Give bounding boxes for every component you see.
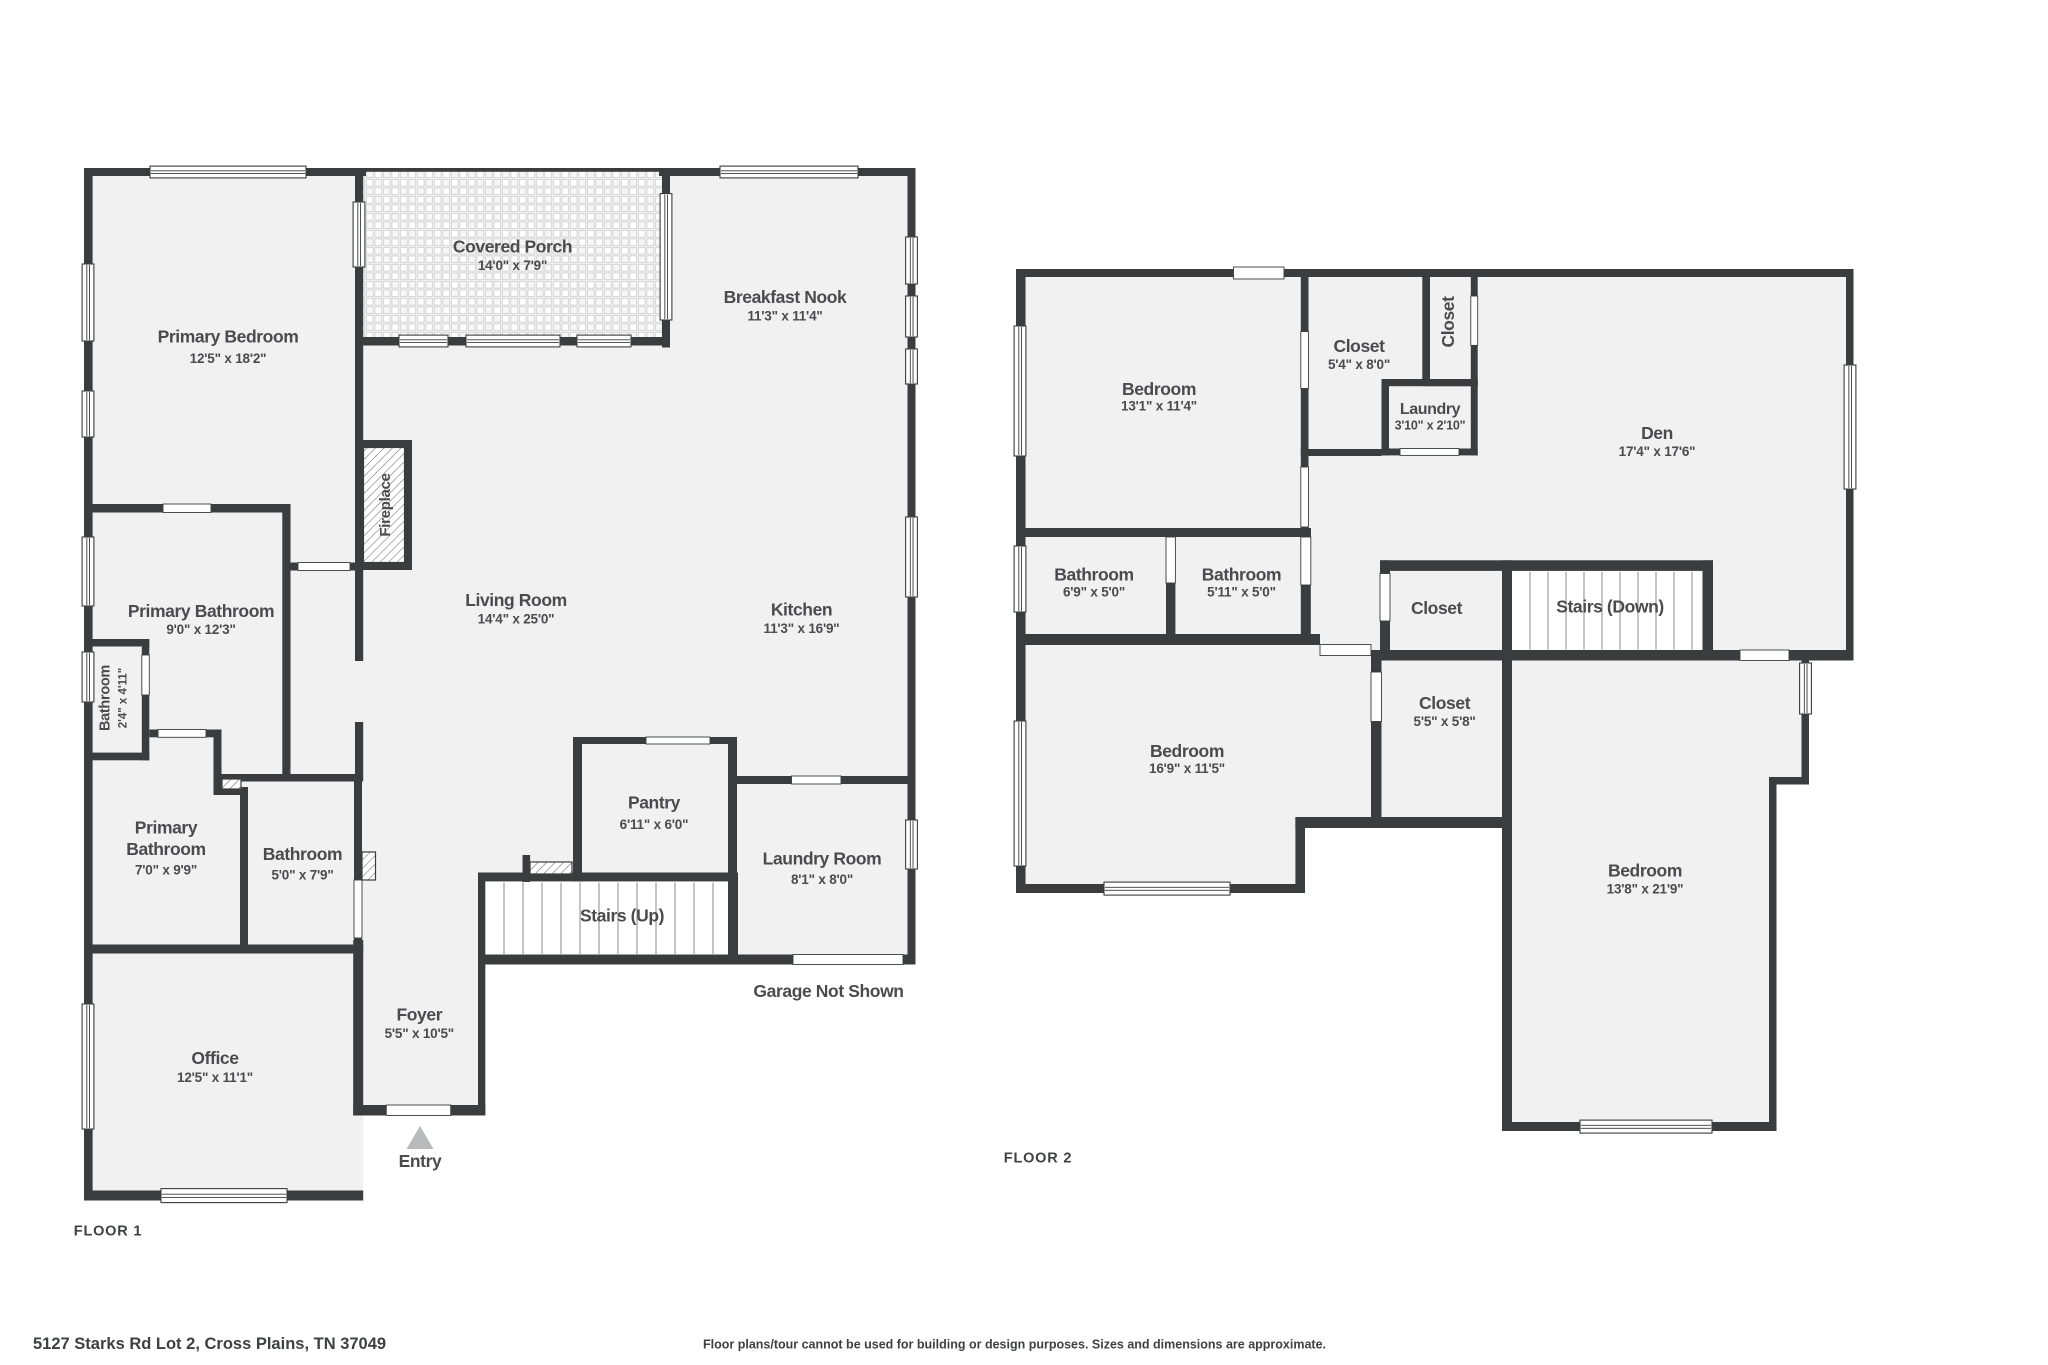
svg-text:14'0" x 7'9": 14'0" x 7'9" [478,258,547,273]
svg-text:Closet: Closet [1419,693,1471,713]
svg-text:Bathroom: Bathroom [1054,565,1133,585]
svg-text:5'5" x 5'8": 5'5" x 5'8" [1414,714,1476,729]
svg-text:Kitchen: Kitchen [771,600,832,620]
svg-text:Bathroom: Bathroom [1202,565,1281,585]
svg-text:Garage Not Shown: Garage Not Shown [753,981,903,1001]
svg-text:14'4" x 25'0": 14'4" x 25'0" [478,612,555,627]
svg-text:Stairs (Up): Stairs (Up) [580,906,664,926]
svg-text:Bedroom: Bedroom [1150,741,1224,761]
svg-text:Den: Den [1641,423,1673,443]
svg-text:9'0" x 12'3": 9'0" x 12'3" [166,622,235,637]
svg-text:Pantry: Pantry [628,793,681,813]
svg-text:5127 Starks Rd Lot 2, Cross Pl: 5127 Starks Rd Lot 2, Cross Plains, TN 3… [33,1335,386,1353]
svg-text:Stairs (Down): Stairs (Down) [1556,597,1664,617]
svg-text:Laundry Room: Laundry Room [763,849,882,869]
svg-text:6'9" x 5'0": 6'9" x 5'0" [1063,585,1125,600]
svg-text:3'10" x 2'10": 3'10" x 2'10" [1395,418,1466,432]
svg-text:Primary Bedroom: Primary Bedroom [158,327,299,347]
svg-text:13'8" x 21'9": 13'8" x 21'9" [1607,882,1684,897]
svg-text:12'5" x 18'2": 12'5" x 18'2" [190,351,267,366]
svg-text:Floor plans/tour cannot be use: Floor plans/tour cannot be used for buil… [703,1337,1326,1351]
svg-text:12'5" x 11'1": 12'5" x 11'1" [177,1070,253,1085]
svg-text:Bathroom: Bathroom [98,665,114,731]
svg-text:7'0" x 9'9": 7'0" x 9'9" [135,863,197,878]
svg-text:Laundry: Laundry [1400,401,1461,418]
svg-text:2'4" x 4'11": 2'4" x 4'11" [118,668,130,729]
svg-text:5'4" x 8'0": 5'4" x 8'0" [1328,357,1390,372]
svg-text:Breakfast Nook: Breakfast Nook [724,287,847,307]
svg-text:13'1" x 11'4": 13'1" x 11'4" [1121,399,1197,414]
svg-text:Closet: Closet [1411,598,1463,618]
svg-text:16'9" x 11'5": 16'9" x 11'5" [1149,761,1225,776]
svg-text:Primary Bathroom: Primary Bathroom [128,601,274,621]
svg-text:5'0" x 7'9": 5'0" x 7'9" [271,868,333,883]
svg-text:Bedroom: Bedroom [1608,861,1682,881]
svg-text:FLOOR 2: FLOOR 2 [1004,1151,1072,1167]
svg-text:Primary: Primary [135,818,198,838]
svg-text:6'11" x 6'0": 6'11" x 6'0" [620,817,689,832]
svg-text:Closet: Closet [1333,336,1385,356]
svg-text:Bedroom: Bedroom [1122,379,1196,399]
svg-text:17'4" x 17'6": 17'4" x 17'6" [1619,444,1696,459]
svg-text:11'3" x 16'9": 11'3" x 16'9" [764,621,840,636]
svg-text:Entry: Entry [399,1151,442,1171]
svg-text:Fireplace: Fireplace [377,473,394,536]
svg-text:Living Room: Living Room [465,590,567,610]
svg-text:Closet: Closet [1438,296,1458,348]
svg-text:Office: Office [191,1048,239,1068]
svg-text:11'3" x 11'4": 11'3" x 11'4" [747,309,822,324]
svg-text:FLOOR 1: FLOOR 1 [74,1224,142,1240]
svg-text:Covered Porch: Covered Porch [453,237,572,257]
svg-text:Foyer: Foyer [396,1005,442,1025]
svg-text:8'1" x 8'0": 8'1" x 8'0" [791,872,853,887]
svg-text:5'5" x 10'5": 5'5" x 10'5" [385,1026,454,1041]
svg-text:Bathroom: Bathroom [126,839,205,859]
svg-text:5'11" x 5'0": 5'11" x 5'0" [1207,585,1276,600]
svg-text:Bathroom: Bathroom [263,844,342,864]
